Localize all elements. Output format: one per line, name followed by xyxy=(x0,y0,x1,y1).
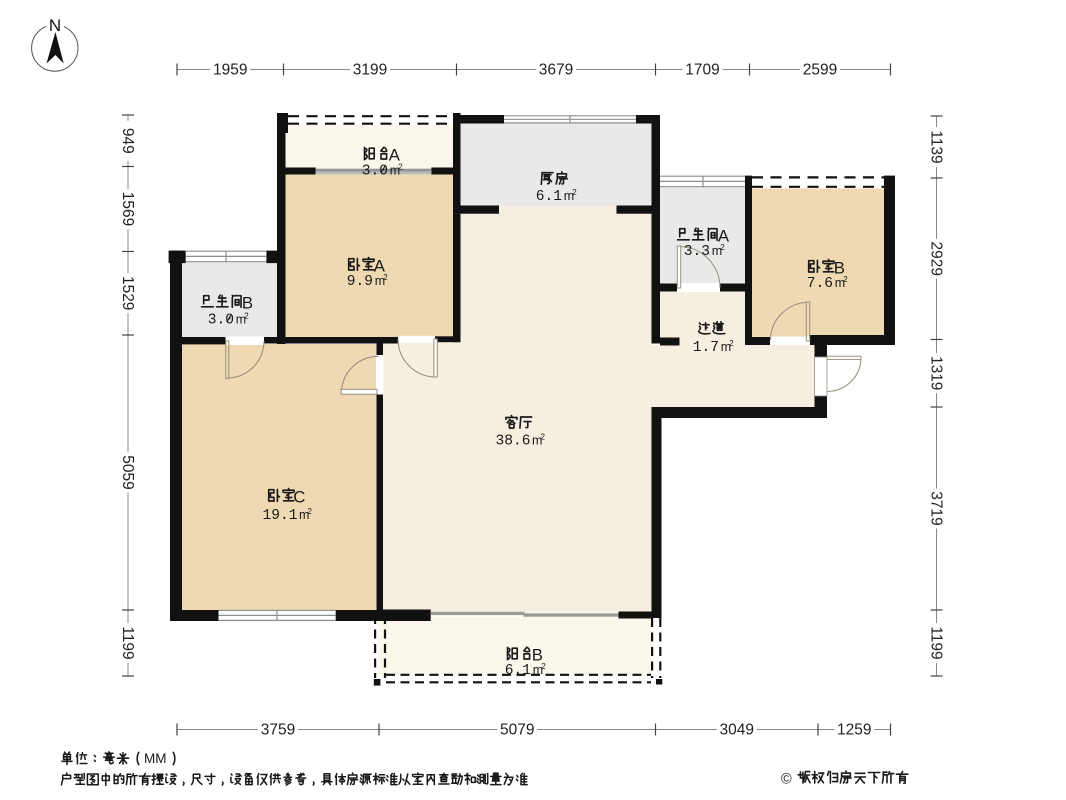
svg-text:1319: 1319 xyxy=(927,356,944,390)
svg-text:19.1: 19.1 xyxy=(263,508,298,524)
svg-text:2: 2 xyxy=(541,662,546,671)
svg-text:1199: 1199 xyxy=(119,626,136,659)
svg-text:5079: 5079 xyxy=(500,722,534,739)
svg-text:1569: 1569 xyxy=(119,192,136,226)
svg-text:2: 2 xyxy=(843,275,848,284)
svg-text:9.9: 9.9 xyxy=(347,274,373,290)
svg-text:2929: 2929 xyxy=(927,242,944,276)
svg-text:3.0: 3.0 xyxy=(208,313,234,329)
svg-text:38.6: 38.6 xyxy=(496,434,531,450)
svg-text:6.1: 6.1 xyxy=(505,663,532,679)
svg-text:1199: 1199 xyxy=(927,626,944,659)
svg-text:3.0: 3.0 xyxy=(362,164,388,180)
svg-text:C: C xyxy=(293,487,305,506)
svg-text:B: B xyxy=(242,293,253,312)
svg-text:1529: 1529 xyxy=(119,276,136,310)
svg-text:3199: 3199 xyxy=(353,62,387,79)
svg-text:1709: 1709 xyxy=(685,62,719,79)
svg-text:2: 2 xyxy=(244,312,249,321)
svg-text:7.6: 7.6 xyxy=(807,276,833,292)
svg-text:2: 2 xyxy=(572,188,577,197)
svg-text:5059: 5059 xyxy=(119,455,136,489)
svg-text:2599: 2599 xyxy=(803,62,837,79)
svg-text:2: 2 xyxy=(729,339,734,348)
svg-text:3679: 3679 xyxy=(539,62,573,79)
svg-text:2: 2 xyxy=(308,507,313,516)
svg-text:2: 2 xyxy=(720,243,725,252)
svg-text:1139: 1139 xyxy=(927,130,944,163)
svg-text:2: 2 xyxy=(383,273,388,282)
svg-text:3.3: 3.3 xyxy=(684,244,710,260)
svg-text:MM: MM xyxy=(144,751,167,766)
svg-text:©: © xyxy=(781,772,792,788)
svg-text:1959: 1959 xyxy=(213,62,247,79)
svg-text:1259: 1259 xyxy=(837,722,871,739)
svg-text:6.1: 6.1 xyxy=(536,189,563,205)
svg-text:3049: 3049 xyxy=(720,722,754,739)
svg-text:N: N xyxy=(49,16,61,35)
svg-text:949: 949 xyxy=(119,128,136,154)
svg-text:3759: 3759 xyxy=(261,722,295,739)
svg-text:3719: 3719 xyxy=(927,491,944,525)
svg-text:A: A xyxy=(389,145,401,164)
svg-text:2: 2 xyxy=(398,163,403,172)
svg-text:1.7: 1.7 xyxy=(693,340,719,356)
svg-text:2: 2 xyxy=(541,433,546,442)
